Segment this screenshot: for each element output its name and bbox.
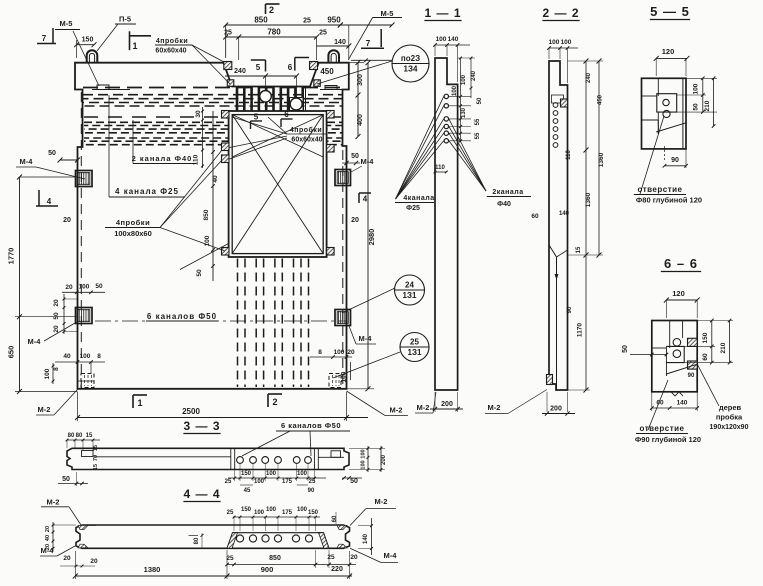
svg-text:25: 25 (224, 30, 232, 37)
svg-text:пробка: пробка (716, 413, 743, 422)
svg-text:M-2: M-2 (417, 403, 430, 412)
svg-text:100: 100 (80, 353, 91, 360)
svg-text:8: 8 (97, 353, 101, 360)
svg-text:100: 100 (436, 36, 447, 43)
svg-text:100: 100 (361, 449, 367, 458)
svg-text:25: 25 (319, 30, 327, 37)
svg-text:300: 300 (357, 74, 364, 86)
svg-text:130: 130 (461, 107, 467, 118)
svg-text:15: 15 (93, 445, 99, 451)
svg-text:M-2: M-2 (390, 406, 403, 415)
svg-text:2 канала Ф40: 2 канала Ф40 (132, 154, 193, 163)
svg-text:50: 50 (622, 345, 629, 353)
svg-text:4пробки: 4пробки (156, 37, 188, 45)
svg-text:M-4: M-4 (20, 157, 34, 166)
svg-text:50: 50 (196, 269, 203, 277)
svg-text:100: 100 (266, 471, 277, 477)
svg-text:6: 6 (288, 63, 293, 72)
svg-text:1360: 1360 (585, 192, 592, 207)
svg-text:150: 150 (308, 510, 319, 516)
svg-text:1: 1 (132, 41, 137, 51)
svg-text:55: 55 (475, 118, 481, 125)
svg-text:100: 100 (204, 235, 211, 246)
svg-text:150: 150 (702, 332, 709, 343)
svg-text:25: 25 (226, 555, 234, 562)
svg-text:100: 100 (561, 39, 572, 46)
svg-text:2: 2 (272, 397, 277, 407)
svg-text:6: 6 (284, 110, 289, 119)
svg-text:4 канала Ф25: 4 канала Ф25 (115, 187, 179, 196)
svg-text:40: 40 (212, 175, 219, 183)
svg-text:100: 100 (361, 460, 367, 469)
svg-text:по2З: по2З (401, 54, 420, 63)
svg-text:150: 150 (82, 37, 94, 44)
svg-text:100: 100 (334, 349, 345, 356)
svg-text:25: 25 (225, 479, 232, 485)
svg-text:60x60x40: 60x60x40 (291, 137, 322, 144)
svg-text:110: 110 (566, 150, 572, 160)
svg-text:отверстие: отверстие (640, 424, 685, 433)
svg-text:15: 15 (93, 464, 99, 470)
svg-text:1З4: 1З4 (404, 65, 418, 74)
svg-text:60: 60 (702, 353, 709, 361)
svg-text:Ф90 глубиной 120: Ф90 глубиной 120 (635, 435, 701, 444)
svg-text:4 — 4: 4 — 4 (183, 487, 220, 501)
svg-text:175: 175 (282, 479, 293, 485)
svg-text:90: 90 (308, 488, 315, 494)
svg-text:100: 100 (693, 83, 700, 94)
svg-text:2500: 2500 (182, 407, 200, 416)
svg-text:140: 140 (559, 211, 570, 217)
svg-text:120: 120 (672, 289, 685, 298)
svg-text:20: 20 (63, 217, 71, 224)
svg-text:1 — 1: 1 — 1 (424, 6, 461, 20)
svg-text:20: 20 (351, 217, 359, 224)
svg-text:4: 4 (47, 197, 52, 206)
svg-text:650: 650 (7, 346, 16, 359)
svg-text:20: 20 (350, 554, 358, 561)
svg-text:20: 20 (53, 299, 60, 307)
svg-text:50: 50 (350, 478, 358, 485)
svg-text:2980: 2980 (367, 229, 376, 246)
svg-text:Ф25: Ф25 (406, 205, 420, 212)
svg-text:850: 850 (254, 16, 268, 25)
svg-text:6 каналов Ф50: 6 каналов Ф50 (147, 312, 217, 321)
svg-text:25: 25 (327, 554, 335, 561)
svg-text:1360: 1360 (598, 152, 605, 167)
svg-text:60: 60 (332, 515, 338, 522)
svg-text:3 — 3: 3 — 3 (183, 419, 220, 433)
svg-text:4: 4 (363, 195, 368, 204)
svg-text:50: 50 (477, 97, 483, 104)
svg-text:15: 15 (86, 433, 93, 439)
svg-text:25: 25 (309, 479, 316, 485)
svg-text:90: 90 (671, 157, 679, 164)
svg-text:50: 50 (95, 283, 103, 290)
svg-text:7: 7 (42, 34, 47, 43)
svg-text:140: 140 (334, 39, 346, 46)
svg-text:24: 24 (405, 281, 414, 290)
svg-text:M-4: M-4 (359, 334, 373, 343)
svg-text:4пробки: 4пробки (290, 126, 322, 134)
svg-text:100x80x60: 100x80x60 (114, 229, 152, 238)
svg-text:100: 100 (44, 368, 51, 379)
svg-text:4пробки: 4пробки (116, 218, 150, 227)
svg-text:50: 50 (693, 103, 700, 111)
svg-text:20: 20 (53, 325, 60, 333)
svg-text:900: 900 (261, 565, 274, 574)
svg-text:60: 60 (531, 213, 539, 220)
svg-text:100: 100 (297, 507, 308, 513)
svg-text:1З1: 1З1 (408, 348, 422, 357)
svg-text:450: 450 (320, 67, 334, 76)
svg-text:200: 200 (381, 454, 387, 465)
svg-text:80: 80 (194, 537, 200, 544)
svg-text:5: 5 (256, 63, 261, 72)
svg-text:8: 8 (53, 367, 60, 371)
svg-text:6 каналов Ф50: 6 каналов Ф50 (281, 421, 341, 430)
svg-text:50: 50 (48, 150, 56, 157)
svg-text:25: 25 (410, 338, 419, 347)
svg-text:M-2: M-2 (38, 405, 51, 414)
svg-text:20: 20 (63, 555, 71, 562)
svg-text:55: 55 (475, 132, 481, 139)
svg-text:1: 1 (137, 398, 142, 408)
svg-text:100: 100 (297, 471, 308, 477)
svg-text:2 — 2: 2 — 2 (542, 6, 579, 20)
svg-text:7: 7 (366, 39, 371, 48)
svg-text:120: 120 (662, 47, 675, 56)
svg-text:50: 50 (53, 312, 60, 320)
svg-text:850: 850 (203, 209, 210, 220)
svg-text:П-5: П-5 (119, 15, 131, 24)
svg-text:40: 40 (63, 353, 71, 360)
svg-text:50: 50 (62, 476, 70, 483)
svg-text:190x120x90: 190x120x90 (710, 424, 749, 431)
svg-text:140: 140 (448, 36, 459, 43)
svg-text:M-5: M-5 (60, 19, 73, 28)
svg-text:90: 90 (688, 373, 695, 379)
svg-text:дерев: дерев (719, 403, 742, 412)
svg-text:100: 100 (461, 74, 467, 85)
svg-text:110: 110 (193, 154, 200, 165)
svg-text:100: 100 (266, 507, 277, 513)
svg-text:80: 80 (68, 433, 75, 439)
svg-text:6 – 6: 6 – 6 (664, 256, 698, 271)
svg-text:M-2: M-2 (375, 497, 388, 506)
svg-text:175: 175 (282, 510, 293, 516)
svg-text:45: 45 (244, 488, 251, 494)
svg-text:140: 140 (677, 400, 688, 407)
svg-text:15: 15 (576, 246, 582, 253)
svg-text:25: 25 (227, 510, 234, 516)
svg-text:1380: 1380 (144, 565, 161, 574)
svg-text:M-4: M-4 (384, 551, 398, 560)
svg-text:1770: 1770 (7, 248, 16, 265)
svg-text:200: 200 (441, 401, 453, 408)
svg-text:950: 950 (327, 16, 341, 25)
svg-text:M-5: M-5 (381, 9, 394, 18)
svg-text:20: 20 (65, 284, 73, 291)
svg-text:1З1: 1З1 (403, 291, 417, 300)
svg-text:80: 80 (76, 433, 83, 439)
svg-text:850: 850 (269, 555, 281, 562)
svg-text:110: 110 (435, 165, 445, 171)
svg-text:100: 100 (254, 510, 265, 516)
svg-text:50: 50 (351, 153, 359, 160)
svg-text:30: 30 (195, 110, 202, 118)
svg-text:780: 780 (267, 28, 281, 37)
svg-text:60x60x40: 60x60x40 (155, 48, 186, 55)
svg-text:210: 210 (720, 342, 727, 353)
svg-text:70: 70 (93, 455, 99, 461)
svg-text:4канала: 4канала (403, 195, 434, 202)
svg-text:200: 200 (550, 406, 562, 413)
svg-text:40: 40 (45, 535, 51, 541)
svg-text:20: 20 (45, 526, 51, 532)
svg-text:210: 210 (704, 100, 711, 111)
svg-text:100: 100 (452, 85, 458, 96)
svg-text:2канала: 2канала (492, 189, 523, 196)
svg-text:150: 150 (241, 471, 252, 477)
svg-text:100: 100 (549, 39, 560, 46)
svg-text:M-2: M-2 (47, 498, 60, 507)
svg-text:90: 90 (567, 306, 573, 313)
svg-text:8: 8 (318, 349, 322, 356)
svg-text:220: 220 (331, 566, 343, 573)
svg-text:1170: 1170 (577, 323, 584, 337)
svg-text:M-2: M-2 (488, 403, 501, 412)
svg-text:M-4: M-4 (361, 157, 375, 166)
svg-text:240: 240 (234, 68, 246, 75)
svg-text:20: 20 (45, 544, 51, 550)
svg-text:Ф40: Ф40 (497, 201, 511, 208)
svg-text:20: 20 (90, 558, 98, 565)
svg-text:400: 400 (357, 114, 364, 126)
svg-text:140: 140 (363, 533, 369, 544)
svg-text:Ф80 глубиной 120: Ф80 глубиной 120 (636, 196, 702, 205)
svg-text:150: 150 (241, 507, 252, 513)
svg-text:100: 100 (254, 479, 265, 485)
svg-text:5 — 5: 5 — 5 (650, 4, 690, 19)
svg-text:5: 5 (254, 113, 259, 122)
svg-text:100: 100 (79, 284, 90, 291)
svg-text:2: 2 (269, 5, 274, 15)
svg-text:отверстие: отверстие (638, 185, 683, 194)
svg-text:25: 25 (303, 18, 311, 25)
svg-text:20: 20 (347, 349, 355, 356)
svg-text:450: 450 (598, 94, 604, 105)
svg-text:M-4: M-4 (28, 337, 42, 346)
svg-text:240: 240 (471, 70, 477, 81)
svg-text:240: 240 (586, 72, 592, 83)
